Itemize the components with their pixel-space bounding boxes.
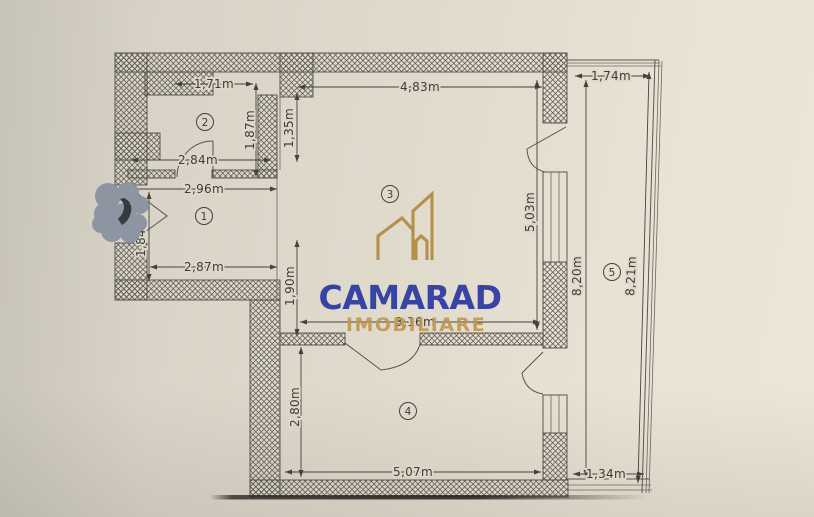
- outer-wall-left-bottom: [250, 300, 280, 497]
- watermark-brand: CAMARAD: [319, 278, 502, 317]
- room-number: 3: [387, 189, 394, 201]
- outer-wall-bottom: [250, 480, 568, 497]
- dim-label: 5,03m: [523, 192, 537, 232]
- dim-label: 1,87m: [243, 110, 257, 150]
- wall-jut-left: [115, 133, 160, 160]
- dim-label: 1,34m: [586, 467, 626, 481]
- dim-label: 4,83m: [400, 80, 440, 94]
- wall-room2-right: [258, 95, 277, 178]
- dim-label: 1,35m: [282, 108, 296, 148]
- dim-label: 8,20m: [570, 256, 584, 296]
- outer-wall-top: [115, 53, 567, 72]
- dim-label: 1,71m: [194, 77, 234, 91]
- dim-label: 2,96m: [184, 182, 224, 196]
- pillar-room3-top-left: [280, 53, 313, 97]
- room-number: 1: [201, 211, 208, 223]
- floor-plan-drawing: 1,71m 1,87m 1,35m 2,84m 2,96m 1,84m 2,87…: [0, 0, 814, 517]
- scan-shadow-line: [210, 495, 650, 500]
- dim-label: 2,84m: [178, 153, 218, 167]
- dim-label: 8,21m: [623, 256, 639, 297]
- pillar-room3-top-right: [543, 53, 567, 123]
- watermark-subtitle: IMOBILIARE: [346, 314, 486, 336]
- scanned-floor-plan-page: 1,71m 1,87m 1,35m 2,84m 2,96m 1,84m 2,87…: [0, 0, 814, 517]
- wall-right-bottom: [543, 433, 567, 480]
- room-number: 5: [609, 267, 616, 279]
- wall-right-middle: [543, 262, 567, 348]
- wall-room1-bottom: [115, 280, 280, 300]
- wall-divider-left: [280, 333, 345, 345]
- dim-label: 1,90m: [283, 266, 297, 306]
- dim-label: 1,74m: [591, 69, 631, 83]
- outer-wall-left-upper: [115, 53, 147, 185]
- room-number: 4: [405, 406, 412, 418]
- dim-label: 5,07m: [393, 465, 433, 479]
- dim-label: 2,87m: [184, 260, 224, 274]
- room-number: 2: [202, 117, 209, 129]
- wall-room2-bottom-left: [128, 170, 175, 178]
- dim-label: 2,80m: [288, 387, 302, 427]
